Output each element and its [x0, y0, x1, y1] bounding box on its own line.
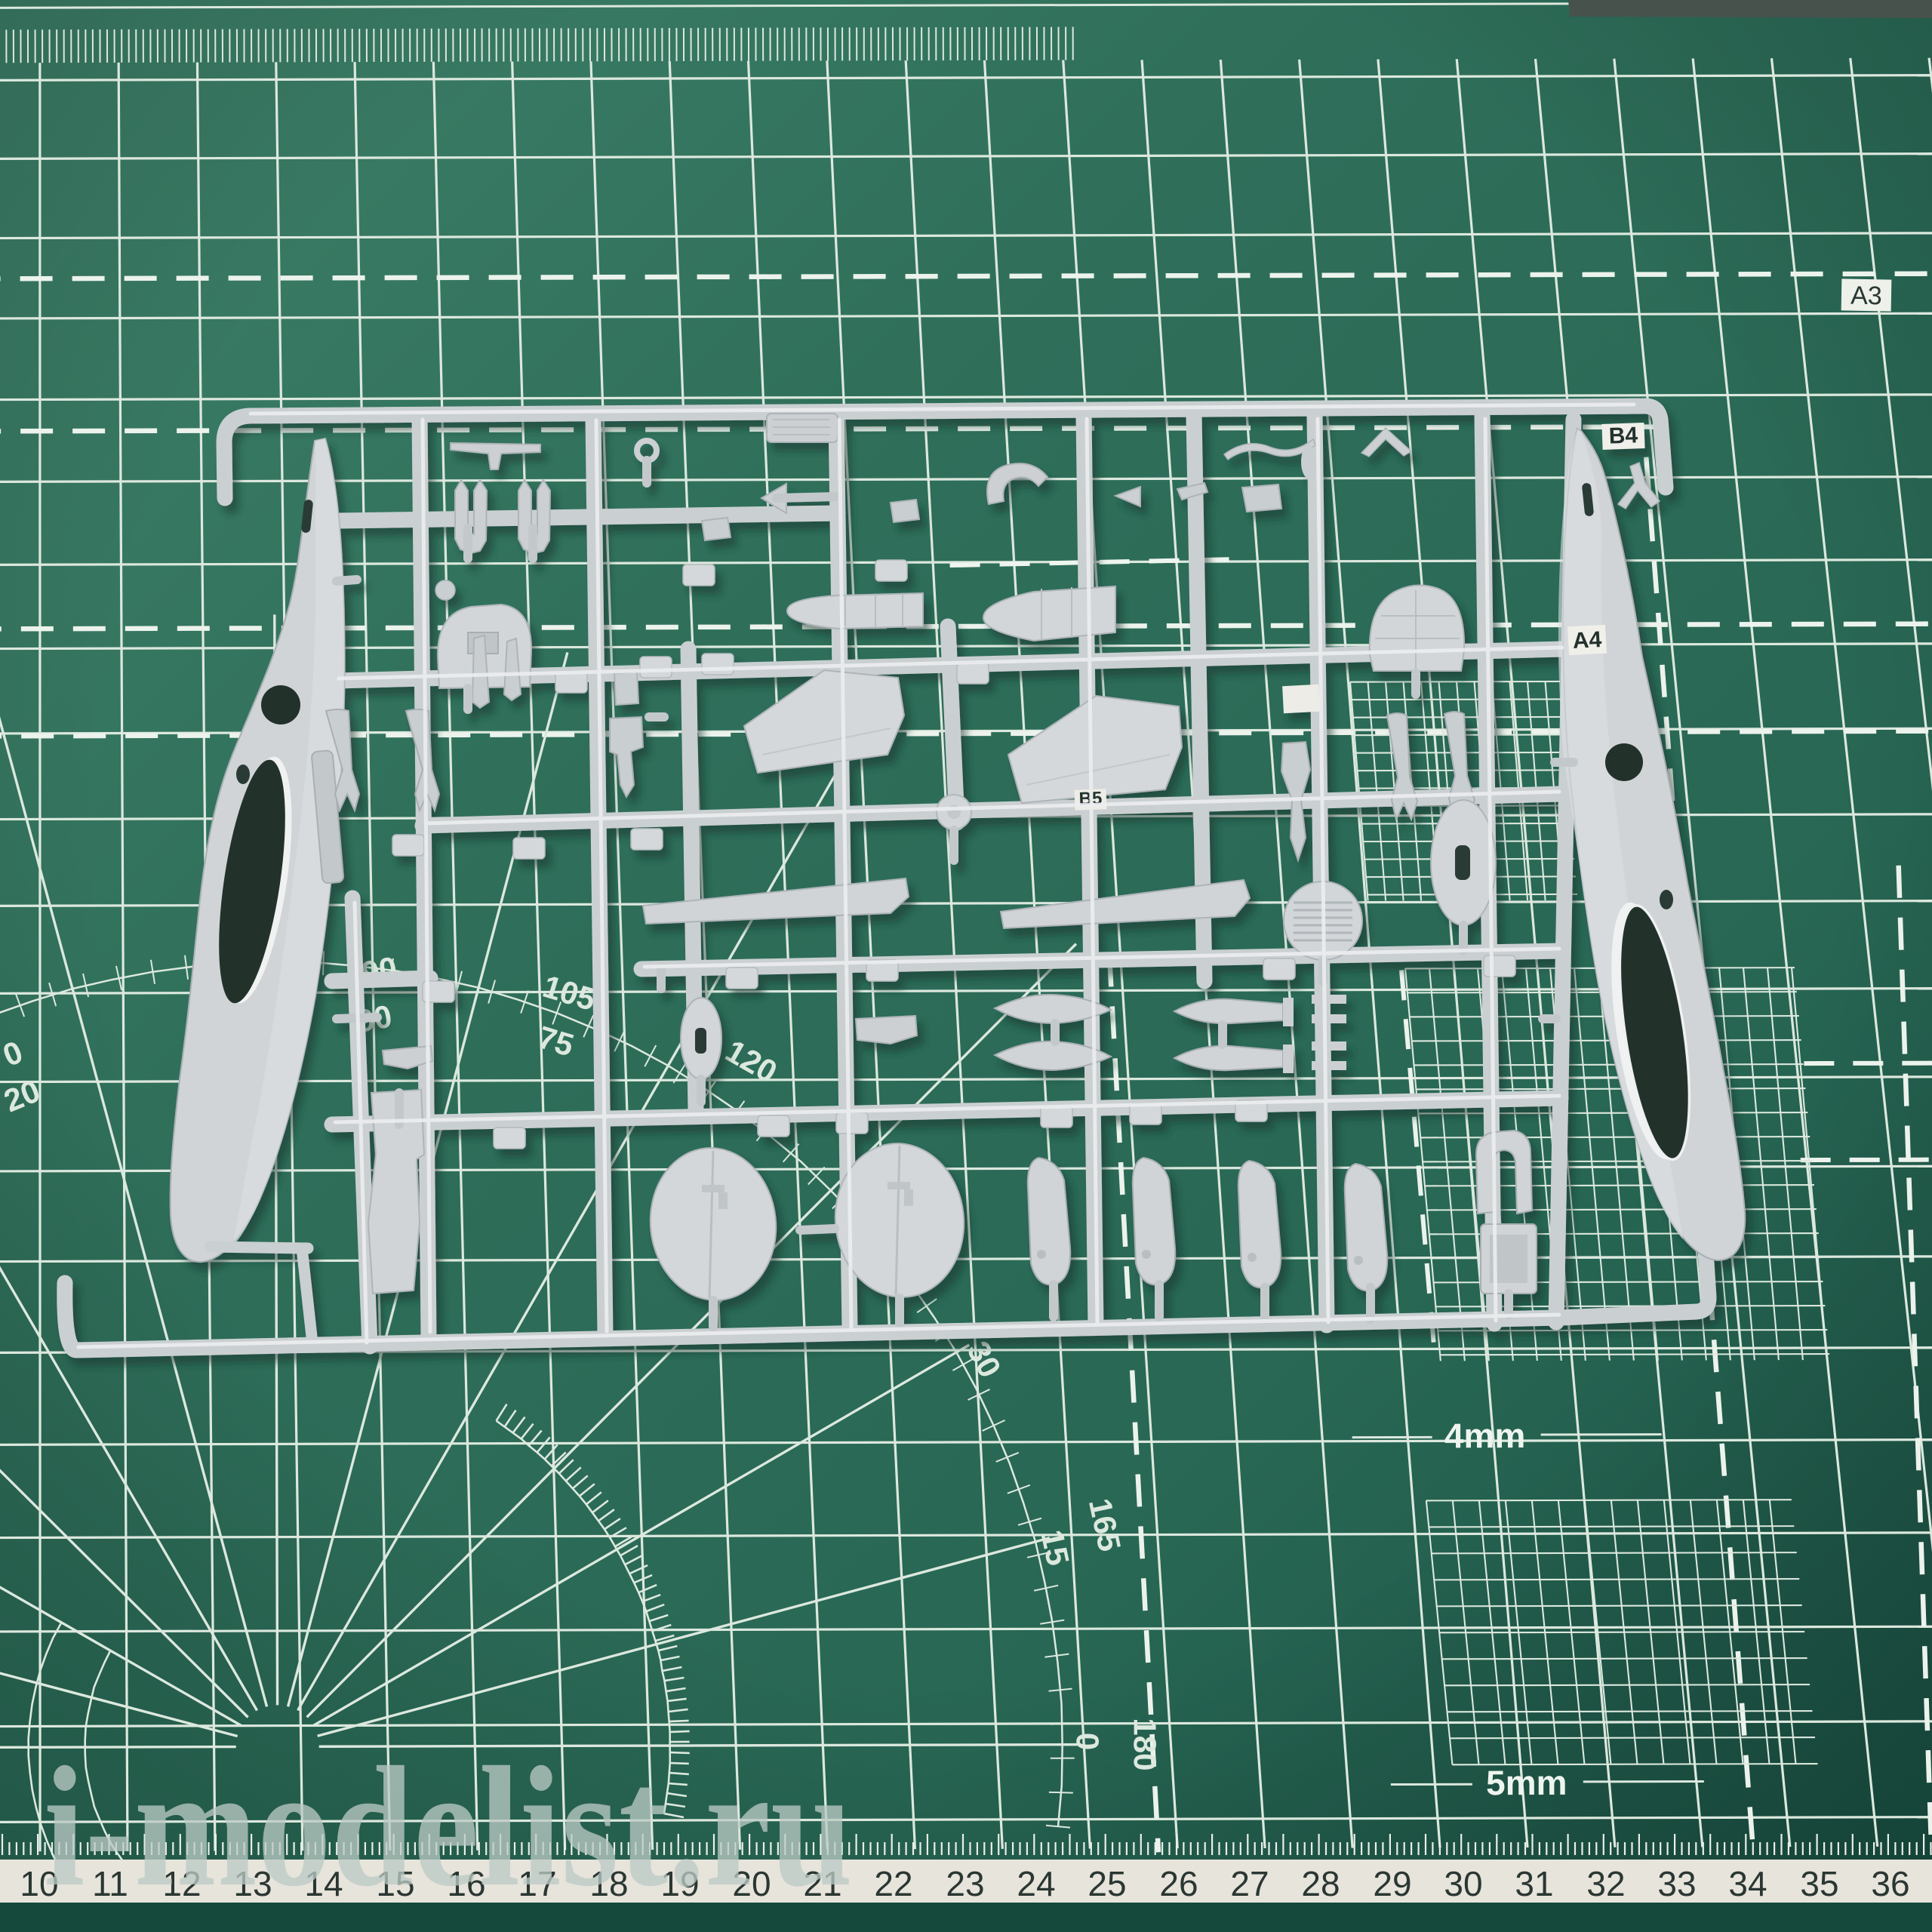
- svg-text:33: 33: [1657, 1864, 1696, 1903]
- svg-text:25: 25: [1088, 1864, 1126, 1903]
- svg-text:23: 23: [946, 1864, 984, 1903]
- svg-text:24: 24: [1017, 1864, 1055, 1903]
- svg-text:34: 34: [1728, 1864, 1767, 1903]
- svg-text:31: 31: [1515, 1864, 1553, 1903]
- svg-text:B4: B4: [1608, 423, 1638, 448]
- svg-text:15: 15: [1034, 1527, 1076, 1569]
- svg-text:0: 0: [1070, 1733, 1106, 1750]
- svg-text:36: 36: [1871, 1864, 1909, 1903]
- svg-text:180: 180: [1128, 1718, 1163, 1770]
- svg-text:27: 27: [1230, 1864, 1269, 1903]
- svg-text:A4: A4: [1572, 627, 1602, 654]
- svg-text:22: 22: [874, 1864, 912, 1903]
- svg-text:A3: A3: [1850, 281, 1882, 311]
- svg-text:30: 30: [1444, 1864, 1482, 1903]
- svg-text:32: 32: [1586, 1864, 1625, 1903]
- svg-text:i-modelist.ru: i-modelist.ru: [44, 1732, 853, 1922]
- svg-text:26: 26: [1159, 1864, 1198, 1903]
- svg-text:5mm: 5mm: [1486, 1763, 1567, 1802]
- svg-text:28: 28: [1301, 1864, 1340, 1903]
- svg-text:4mm: 4mm: [1444, 1416, 1526, 1455]
- svg-text:29: 29: [1373, 1864, 1411, 1903]
- svg-text:35: 35: [1800, 1864, 1838, 1903]
